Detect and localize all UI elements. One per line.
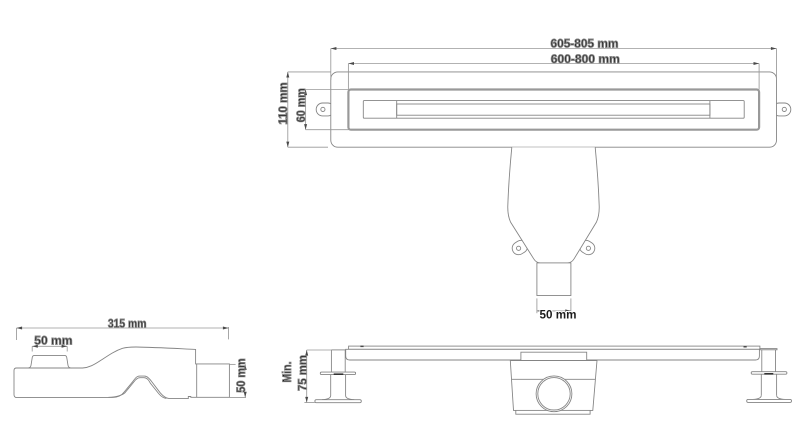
svg-text:Min.: Min. <box>280 362 294 383</box>
svg-text:600-800 mm: 600-800 mm <box>551 52 620 66</box>
svg-text:75 mm: 75 mm <box>295 355 309 391</box>
svg-text:605-805 mm: 605-805 mm <box>551 37 619 51</box>
svg-text:50 mm: 50 mm <box>34 333 72 347</box>
svg-text:315 mm: 315 mm <box>108 317 147 331</box>
svg-text:110 mm: 110 mm <box>276 82 290 124</box>
svg-text:60 mm: 60 mm <box>294 88 308 122</box>
svg-text:50 mm: 50 mm <box>540 308 577 322</box>
svg-text:50 mm: 50 mm <box>234 358 248 392</box>
